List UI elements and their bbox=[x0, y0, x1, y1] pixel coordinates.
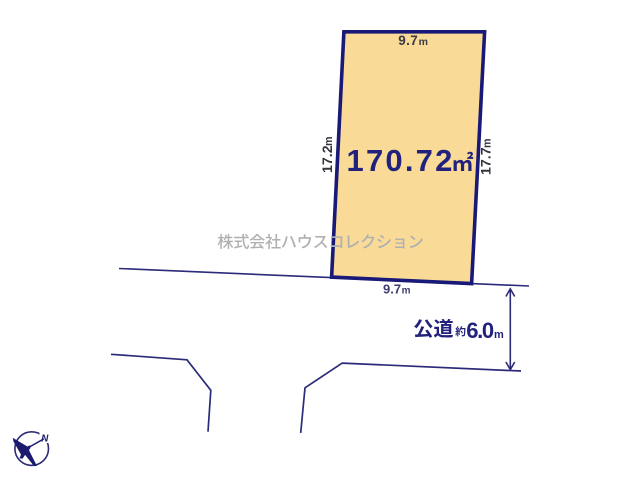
svg-text:9.7: 9.7 bbox=[383, 282, 401, 297]
svg-text:m: m bbox=[402, 286, 411, 297]
svg-text:9.7: 9.7 bbox=[398, 33, 418, 48]
svg-text:m: m bbox=[419, 36, 428, 48]
svg-text:m: m bbox=[494, 329, 504, 341]
svg-text:6.0: 6.0 bbox=[466, 318, 494, 343]
svg-text:17.7: 17.7 bbox=[479, 147, 495, 175]
svg-text:m: m bbox=[323, 136, 335, 146]
svg-text:m: m bbox=[482, 138, 494, 148]
svg-text:170.72: 170.72 bbox=[347, 143, 455, 178]
svg-text:17.2: 17.2 bbox=[320, 145, 336, 173]
svg-text:N: N bbox=[41, 434, 49, 445]
